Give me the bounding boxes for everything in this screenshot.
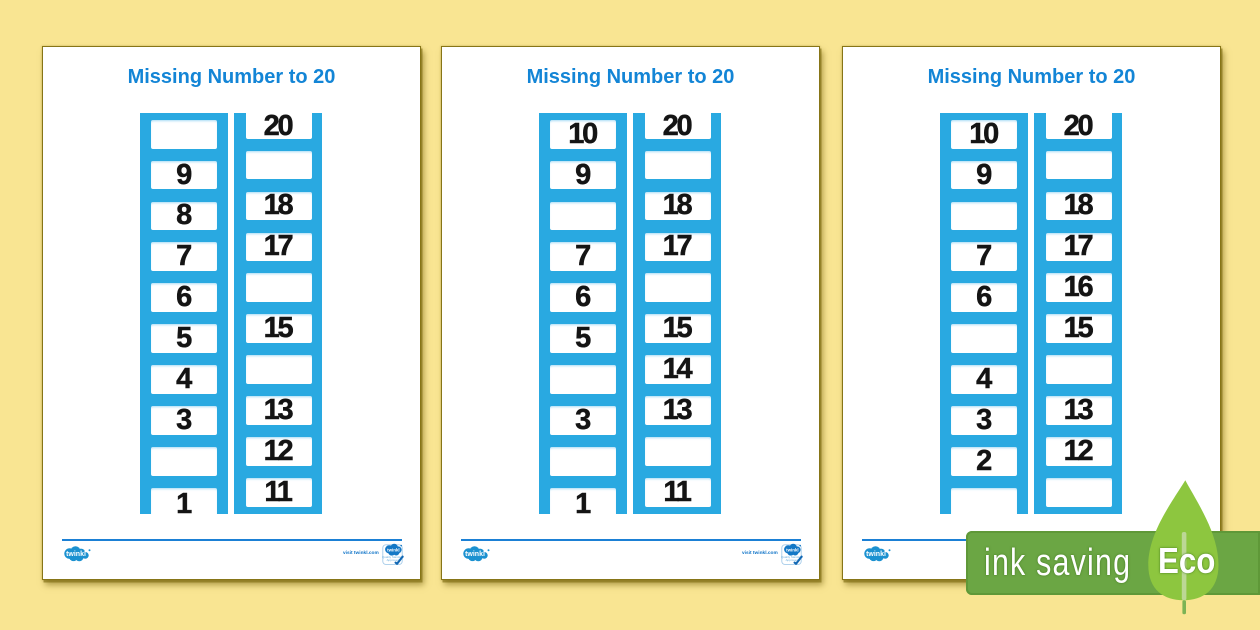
svg-text:twinkl: twinkl xyxy=(387,547,399,552)
svg-text:Approved: Approved xyxy=(785,558,798,562)
svg-text:twinkl: twinkl xyxy=(866,551,886,558)
svg-text:twinkl: twinkl xyxy=(465,551,485,558)
svg-text:twinkl: twinkl xyxy=(786,547,798,552)
svg-text:twinkl: twinkl xyxy=(66,551,86,558)
svg-text:Approved: Approved xyxy=(386,558,399,562)
